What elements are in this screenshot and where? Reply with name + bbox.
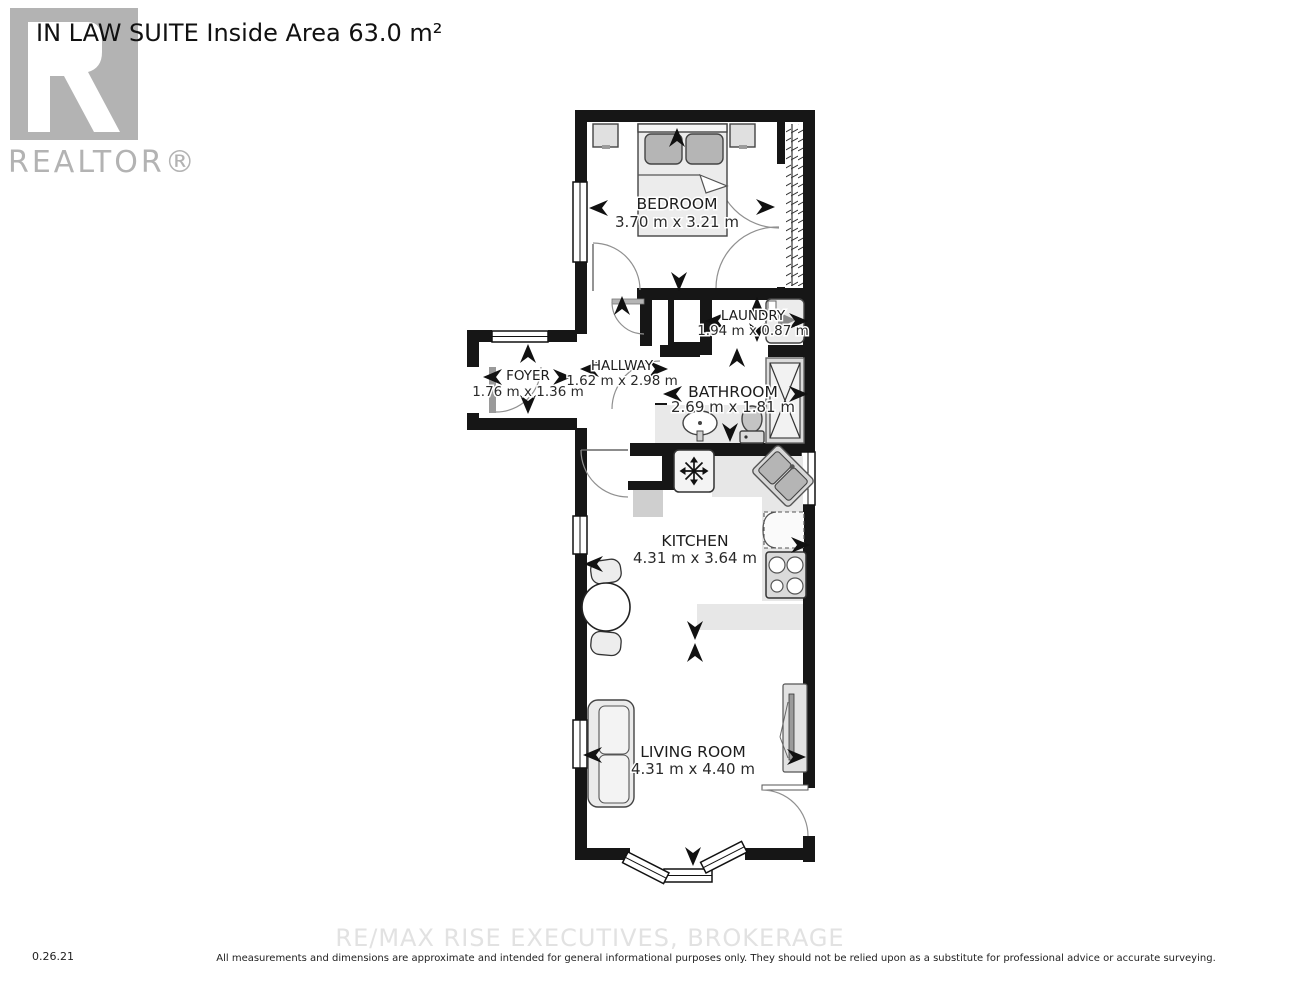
page-title: IN LAW SUITE Inside Area 63.0 m² <box>36 19 442 47</box>
chair <box>590 631 622 657</box>
living-room-entry-door <box>762 785 808 836</box>
kitchen-dims: 4.31 m x 3.64 m <box>633 549 757 567</box>
laundry-label: LAUNDRY <box>721 308 786 324</box>
bedroom-label: BEDROOM <box>637 195 718 213</box>
pantry-shelf <box>633 490 663 517</box>
dining-table <box>582 558 630 656</box>
fridge <box>674 450 714 492</box>
arrow-icon <box>685 847 701 866</box>
foyer-label: FOYER <box>506 368 550 384</box>
arrow-icon <box>687 643 703 662</box>
arrow-icon <box>687 621 703 640</box>
bay-window-right <box>701 841 747 873</box>
floorplan-page: REALTOR® IN LAW SUITE Inside Area 63.0 m… <box>0 0 1294 1000</box>
bedroom-closet <box>786 124 803 286</box>
foyer-window <box>492 331 548 342</box>
bay-window-left <box>623 852 669 884</box>
living-room-dims: 4.31 m x 4.40 m <box>631 760 755 778</box>
nightstand-right <box>730 124 755 149</box>
hall-closet-door <box>612 299 644 334</box>
bathroom-dims: 2.69 m x 1.81 m <box>671 398 795 416</box>
living-room-label: LIVING ROOM <box>640 743 745 761</box>
arrow-icon <box>756 199 775 215</box>
living-room-window <box>573 720 587 768</box>
date-code: 0.26.21 <box>32 950 74 963</box>
disclaimer: All measurements and dimensions are appr… <box>216 953 1216 964</box>
snowflake-icon <box>682 459 706 483</box>
kitchen-label: KITCHEN <box>661 532 728 550</box>
bedroom-dims: 3.70 m x 3.21 m <box>615 213 739 231</box>
floorplan-canvas: REALTOR® IN LAW SUITE Inside Area 63.0 m… <box>0 0 1294 1000</box>
bedroom-window <box>573 182 587 262</box>
stove <box>766 552 806 598</box>
arrow-icon <box>729 348 745 367</box>
realtor-logo-wordmark: REALTOR® <box>8 145 198 180</box>
kitchen-door <box>581 450 628 497</box>
laundry-dims: 1.94 m x 0.87 m <box>697 323 809 339</box>
kitchen-left-window <box>573 516 587 554</box>
arrow-icon <box>520 344 536 363</box>
hallway-label: HALLWAY <box>591 358 654 374</box>
foyer-dims: 1.76 m x 1.36 m <box>472 384 584 400</box>
brokerage-watermark: RE/MAX RISE EXECUTIVES, BROKERAGE <box>335 924 844 952</box>
arrow-icon <box>589 200 608 216</box>
bedroom-door <box>593 243 640 291</box>
kitchen-peninsula <box>697 604 803 630</box>
nightstand-left <box>593 124 618 149</box>
